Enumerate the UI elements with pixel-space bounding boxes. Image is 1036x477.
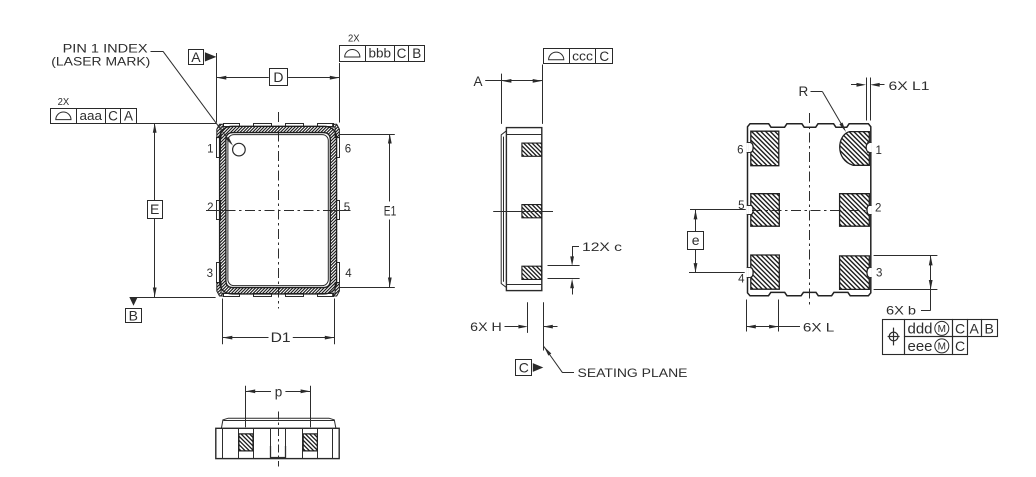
svg-text:C: C: [519, 360, 529, 376]
svg-text:SEATING PLANE: SEATING PLANE: [578, 366, 688, 380]
svg-text:D: D: [273, 69, 283, 85]
svg-text:eee: eee: [908, 338, 933, 355]
svg-text:A: A: [124, 109, 133, 124]
svg-text:3: 3: [207, 268, 213, 280]
svg-text:A: A: [191, 49, 201, 65]
svg-text:C: C: [955, 338, 965, 354]
svg-text:M: M: [938, 324, 946, 335]
svg-text:5: 5: [738, 200, 744, 212]
svg-text:1: 1: [207, 144, 213, 156]
svg-text:B: B: [985, 320, 994, 336]
svg-text:A: A: [474, 74, 483, 89]
svg-text:1: 1: [876, 145, 882, 157]
svg-text:bbb: bbb: [369, 46, 392, 61]
svg-text:2X: 2X: [348, 34, 360, 45]
svg-text:ccc: ccc: [572, 48, 593, 63]
svg-text:4: 4: [738, 273, 745, 285]
svg-text:4: 4: [345, 268, 352, 280]
svg-text:p: p: [275, 385, 283, 400]
svg-text:2: 2: [875, 203, 881, 215]
svg-text:2X: 2X: [58, 97, 70, 108]
svg-text:e: e: [692, 232, 700, 248]
svg-text:PIN 1 INDEX: PIN 1 INDEX: [63, 42, 148, 56]
svg-text:6: 6: [345, 144, 351, 156]
svg-text:A: A: [970, 320, 980, 336]
svg-text:E: E: [150, 201, 159, 217]
svg-text:B: B: [129, 308, 138, 324]
svg-text:R: R: [799, 84, 809, 99]
svg-text:(LASER MARK): (LASER MARK): [51, 55, 150, 69]
svg-text:6X H: 6X H: [470, 320, 502, 334]
svg-text:2: 2: [207, 202, 213, 214]
svg-text:3: 3: [876, 267, 882, 279]
svg-text:aaa: aaa: [80, 108, 103, 123]
svg-text:C: C: [397, 46, 407, 61]
svg-text:ddd: ddd: [908, 320, 933, 337]
svg-text:B: B: [412, 46, 421, 61]
svg-text:E1: E1: [384, 204, 397, 219]
svg-text:M: M: [938, 342, 946, 353]
svg-text:5: 5: [344, 202, 350, 214]
svg-text:6X L1: 6X L1: [889, 79, 930, 93]
svg-text:D1: D1: [271, 330, 291, 345]
svg-text:6X b: 6X b: [886, 304, 916, 318]
svg-text:6: 6: [737, 145, 743, 157]
svg-text:C: C: [599, 49, 609, 64]
svg-text:C: C: [955, 320, 965, 336]
svg-text:6X L: 6X L: [803, 320, 835, 334]
svg-text:C: C: [108, 109, 118, 124]
svg-text:12X c: 12X c: [582, 240, 622, 254]
